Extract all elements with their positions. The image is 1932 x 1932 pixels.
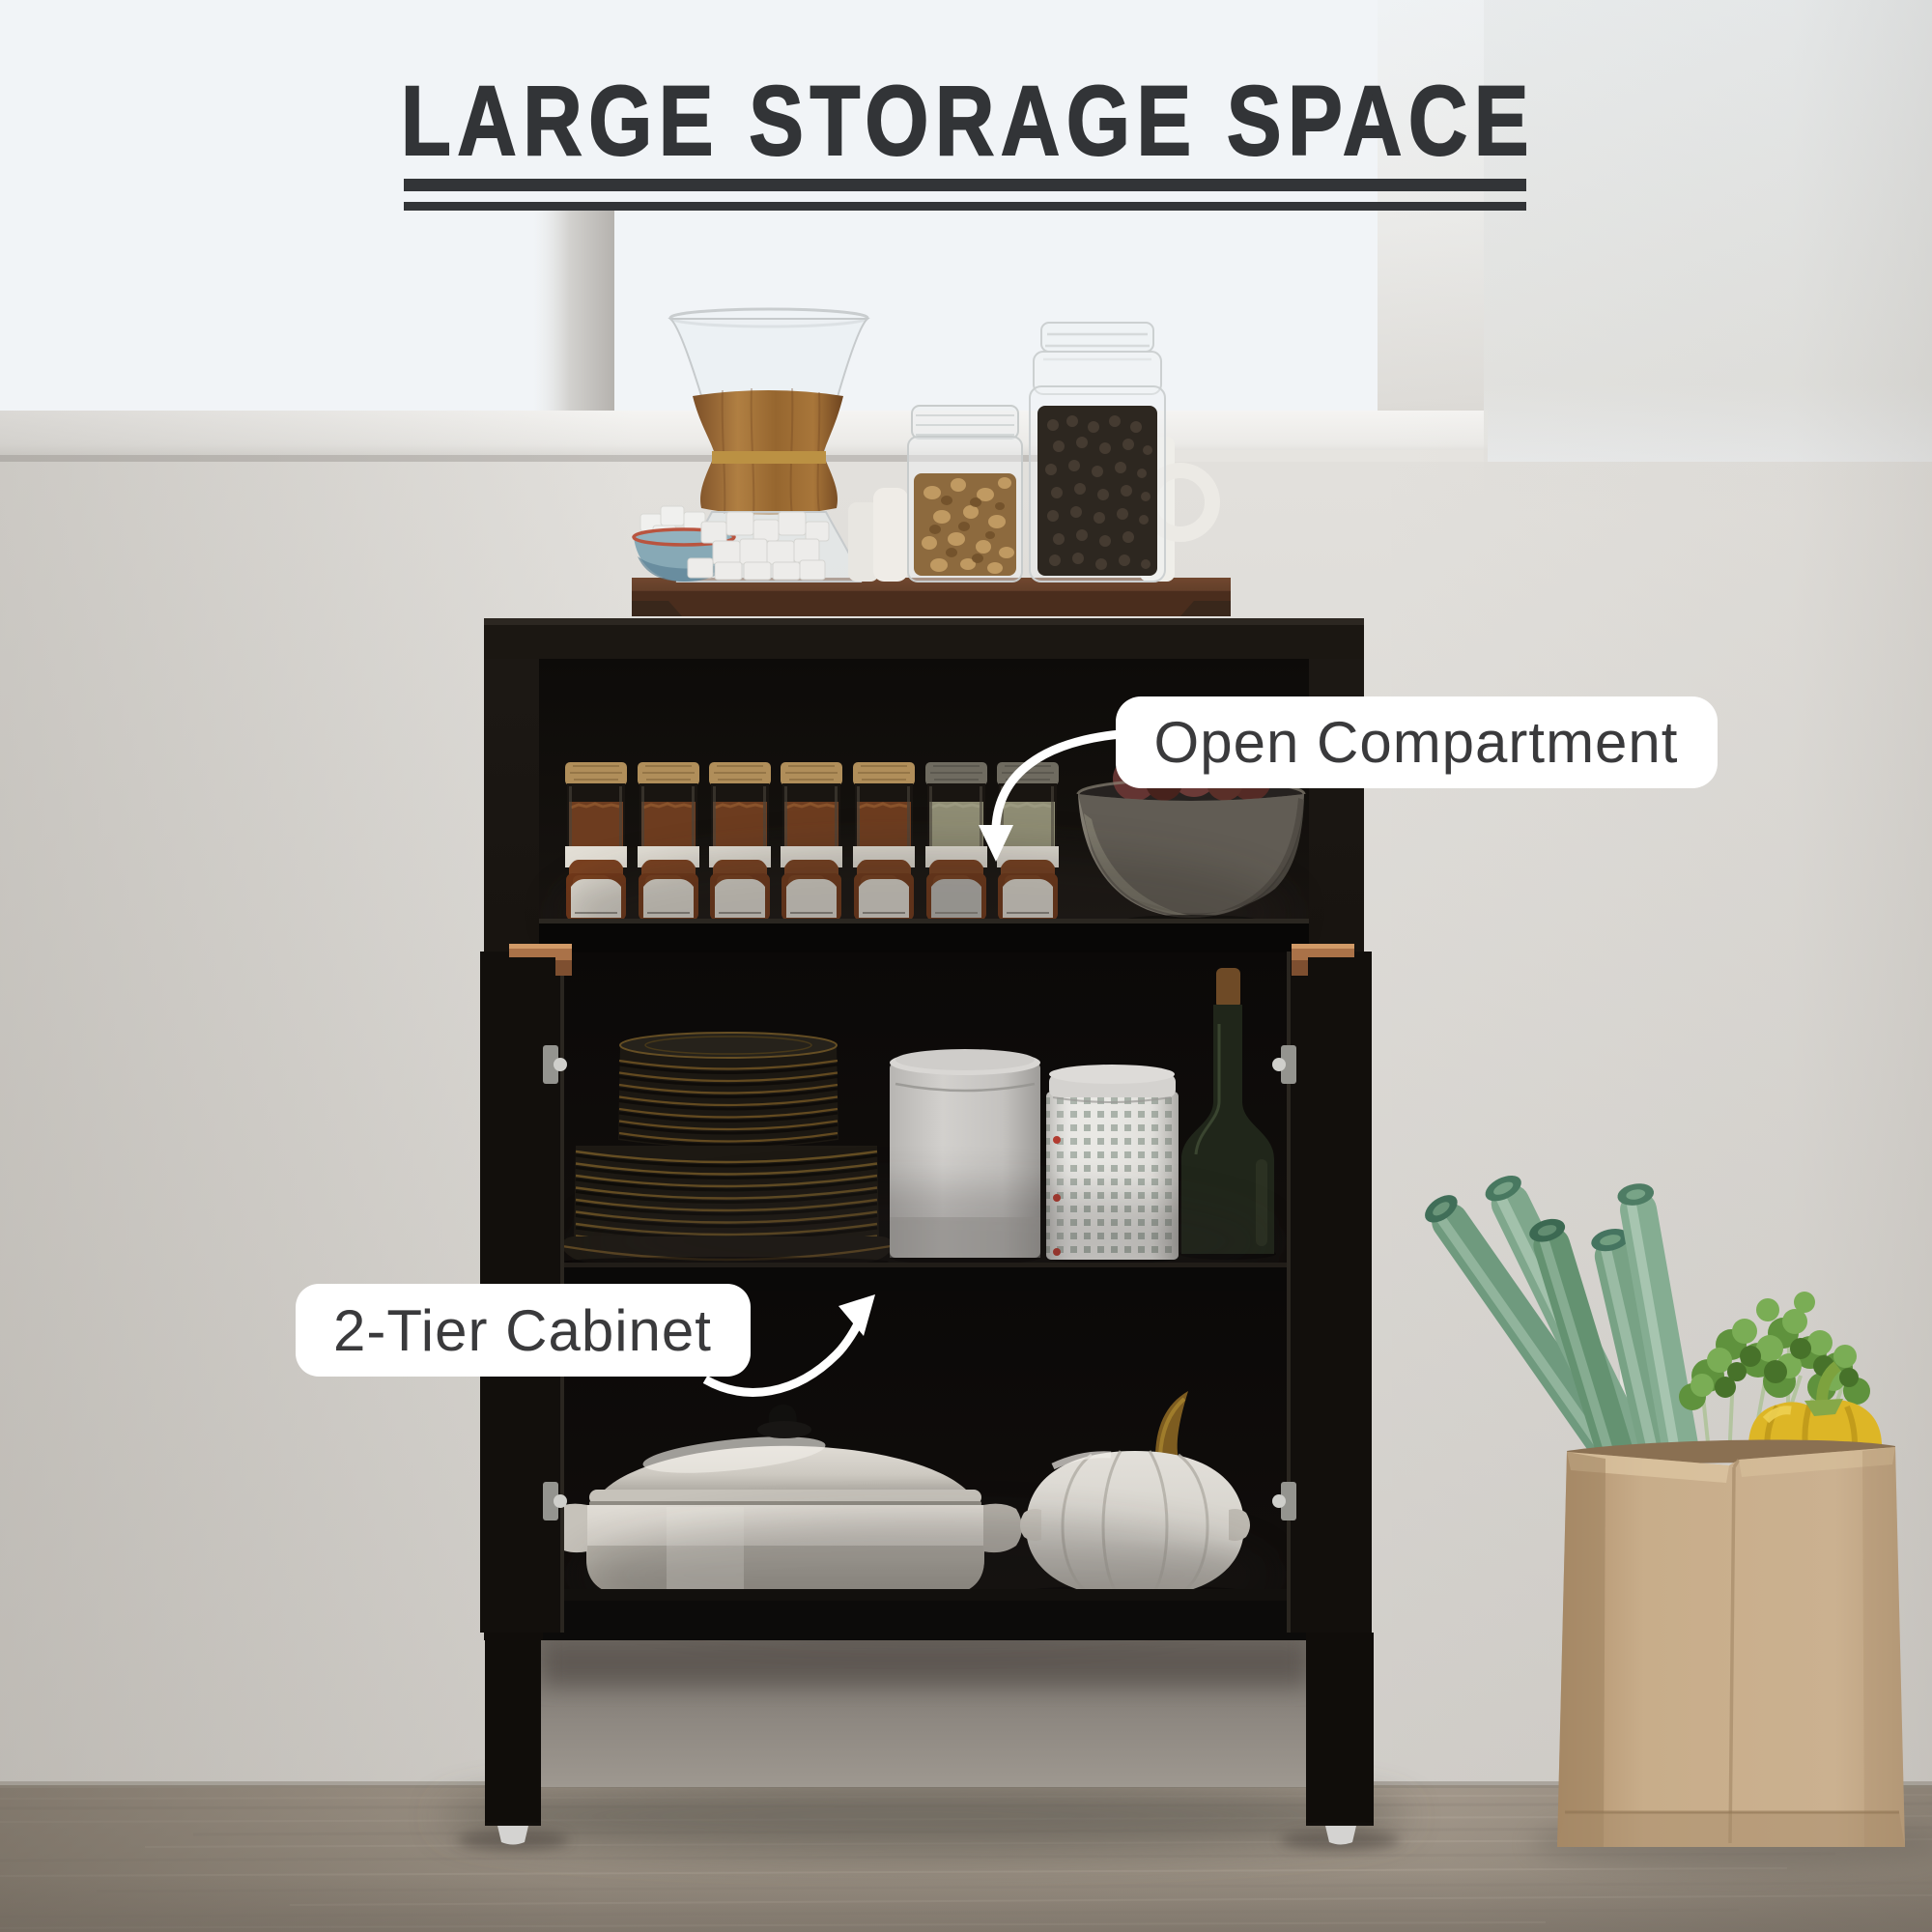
svg-text:Open Compartment: Open Compartment	[1154, 710, 1679, 775]
svg-text:LARGE STORAGE SPACE: LARGE STORAGE SPACE	[401, 66, 1535, 176]
svg-text:2-Tier Cabinet: 2-Tier Cabinet	[333, 1298, 712, 1363]
